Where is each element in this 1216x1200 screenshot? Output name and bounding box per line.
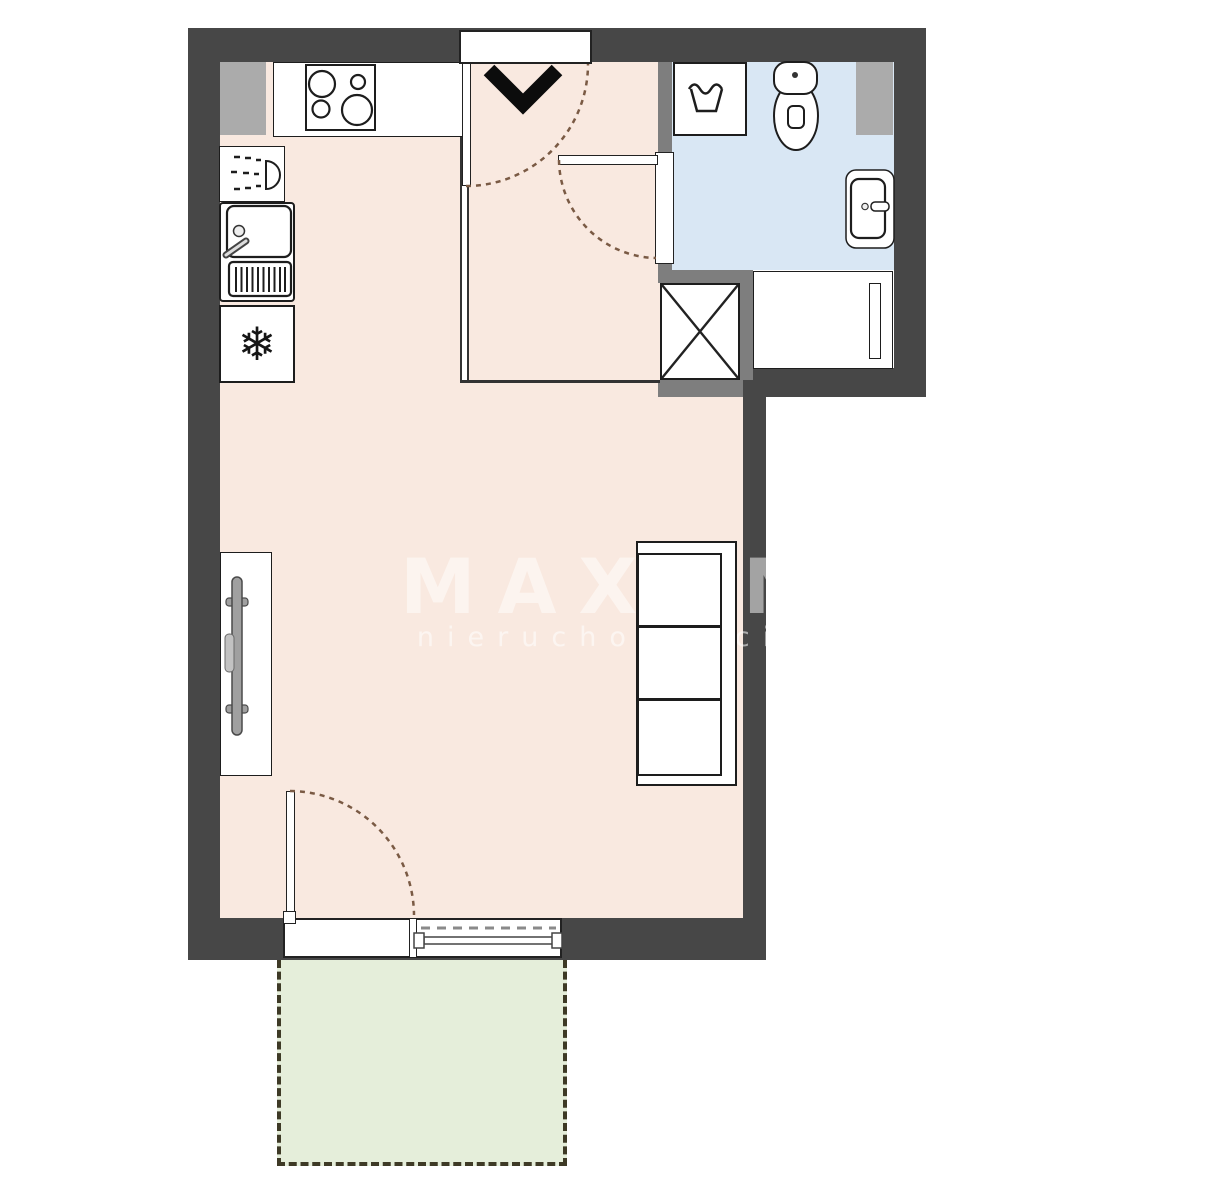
- balcony-floor: [277, 960, 567, 1166]
- bathroom-door-leaf: [558, 155, 658, 165]
- partition-shaft-wardrobe: [740, 270, 753, 380]
- wardrobe-door-panel: [869, 283, 881, 359]
- stove: [305, 64, 376, 131]
- partition-below-shaft: [658, 380, 743, 397]
- hall-boundary-line: [460, 380, 660, 383]
- entry-door-leaf: [462, 63, 471, 186]
- balcony-unit-divider: [409, 918, 417, 958]
- kitchen-sink-unit: [219, 202, 295, 302]
- balcony-door-leaf: [286, 791, 295, 918]
- washing-machine: [673, 62, 747, 136]
- partition-above-shaft: [658, 270, 753, 283]
- fridge-snowflake-icon: ❄: [219, 305, 295, 383]
- sofa-seat: [637, 553, 722, 776]
- wall-shaft-block-left: [219, 62, 266, 135]
- tv-cabinet: [220, 552, 272, 776]
- balcony-door-window-unit: [283, 918, 562, 958]
- wall-right-living: [743, 368, 766, 960]
- balcony-door-hinge: [283, 911, 296, 924]
- wall-right-bathroom: [894, 28, 926, 397]
- sofa-cushion-divider-1: [637, 625, 722, 628]
- dishwasher: [219, 146, 285, 202]
- bathroom-door-opening: [655, 152, 674, 264]
- wall-bathroom-bottom: [743, 368, 926, 397]
- sofa-cushion-divider-2: [637, 698, 722, 701]
- floor-plan: MAXON nieruchomości ❄: [0, 0, 1216, 1200]
- wall-left: [188, 28, 220, 960]
- wall-shaft-block-right: [856, 62, 893, 135]
- ventilation-shaft: [660, 283, 740, 380]
- entry-door-opening: [459, 30, 592, 64]
- watermark-title: MAXON: [400, 542, 800, 631]
